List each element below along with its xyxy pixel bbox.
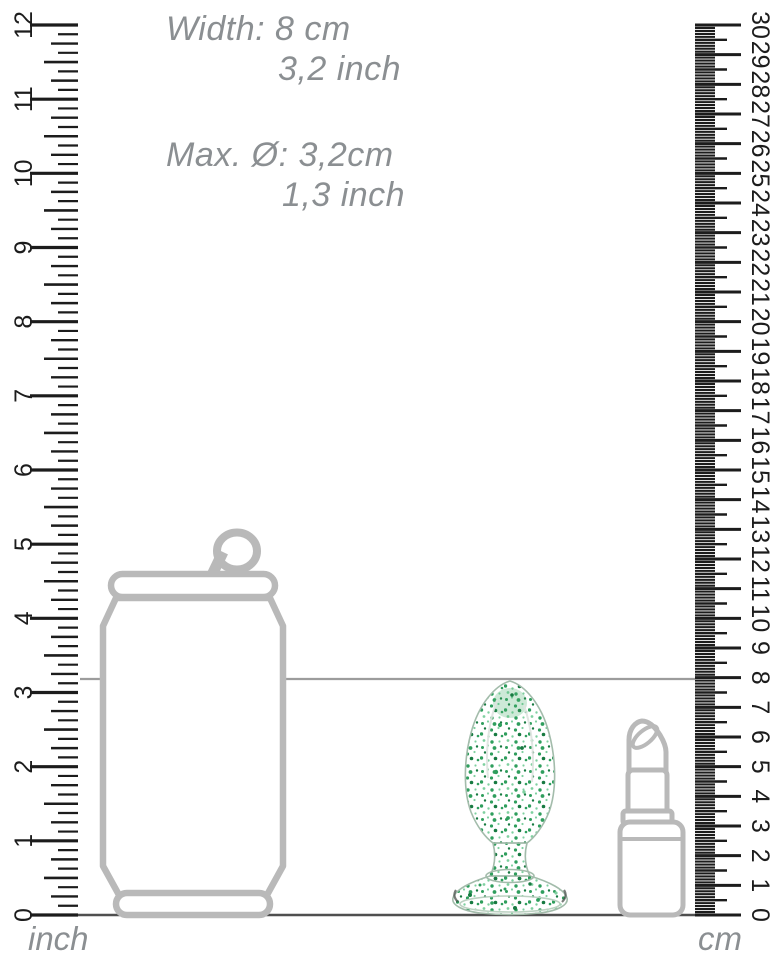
ruler-number: 7 [10, 389, 38, 403]
ruler-number: 4 [10, 611, 38, 625]
ruler-number: 23 [746, 219, 774, 247]
cm-ruler: 0123456789101112131415161718192021222324… [695, 11, 774, 922]
ruler-number: 6 [746, 730, 774, 744]
can-body [103, 598, 283, 895]
ruler-number: 0 [10, 908, 38, 922]
inch-ruler: 0123456789101112 [10, 11, 78, 922]
soda-can-outline [103, 533, 283, 916]
ruler-number: 17 [746, 397, 774, 425]
ruler-number: 3 [746, 819, 774, 833]
ruler-number: 5 [10, 537, 38, 551]
ruler-number: 18 [746, 367, 774, 395]
ruler-number: 30 [746, 11, 774, 39]
ruler-number: 3 [10, 686, 38, 700]
ruler-number: 29 [746, 41, 774, 69]
ruler-number: 16 [746, 426, 774, 454]
lipstick-base-tube [620, 822, 683, 915]
ruler-number: 7 [746, 700, 774, 714]
ruler-number: 10 [746, 604, 774, 632]
can-lid [111, 574, 275, 597]
ruler-number: 26 [746, 130, 774, 158]
ruler-number: 1 [10, 834, 38, 848]
ruler-number: 12 [746, 545, 774, 573]
ruler-number: 9 [10, 241, 38, 255]
ruler-number: 22 [746, 248, 774, 276]
ruler-number: 19 [746, 337, 774, 365]
ruler-number: 27 [746, 100, 774, 128]
ruler-number: 9 [746, 641, 774, 655]
size-chart: Width: 8 cm 3,2 inch Max. Ø: 3,2cm 1,3 i… [0, 0, 774, 972]
ruler-number: 12 [10, 11, 38, 39]
ruler-number: 13 [746, 515, 774, 543]
can-bottom-rim [116, 893, 270, 915]
ruler-number: 2 [746, 849, 774, 863]
ruler-number: 28 [746, 70, 774, 98]
lipstick-inner-tube [628, 770, 667, 814]
plug-tip-tint [493, 688, 527, 718]
ruler-number: 2 [10, 760, 38, 774]
lipstick-outline [620, 721, 683, 915]
ruler-number: 4 [746, 789, 774, 803]
ruler-number: 6 [10, 463, 38, 477]
ruler-number: 14 [746, 486, 774, 514]
ruler-number: 1 [746, 878, 774, 892]
ruler-number: 20 [746, 308, 774, 336]
ruler-number: 21 [746, 278, 774, 306]
diagram-canvas: 0123456789101112 01234567891011121314151… [0, 0, 774, 972]
ruler-number: 24 [746, 189, 774, 217]
ruler-number: 10 [10, 159, 38, 187]
ruler-number: 8 [10, 315, 38, 329]
ruler-number: 5 [746, 760, 774, 774]
glitter-glass-plug [453, 681, 567, 915]
ruler-number: 11 [10, 86, 38, 112]
ruler-number: 0 [746, 908, 774, 922]
ruler-number: 11 [746, 576, 774, 602]
plug-ridge [486, 870, 534, 883]
ruler-number: 8 [746, 671, 774, 685]
ruler-number: 15 [746, 456, 774, 484]
can-tab-ring [217, 533, 257, 570]
ruler-number: 25 [746, 159, 774, 187]
